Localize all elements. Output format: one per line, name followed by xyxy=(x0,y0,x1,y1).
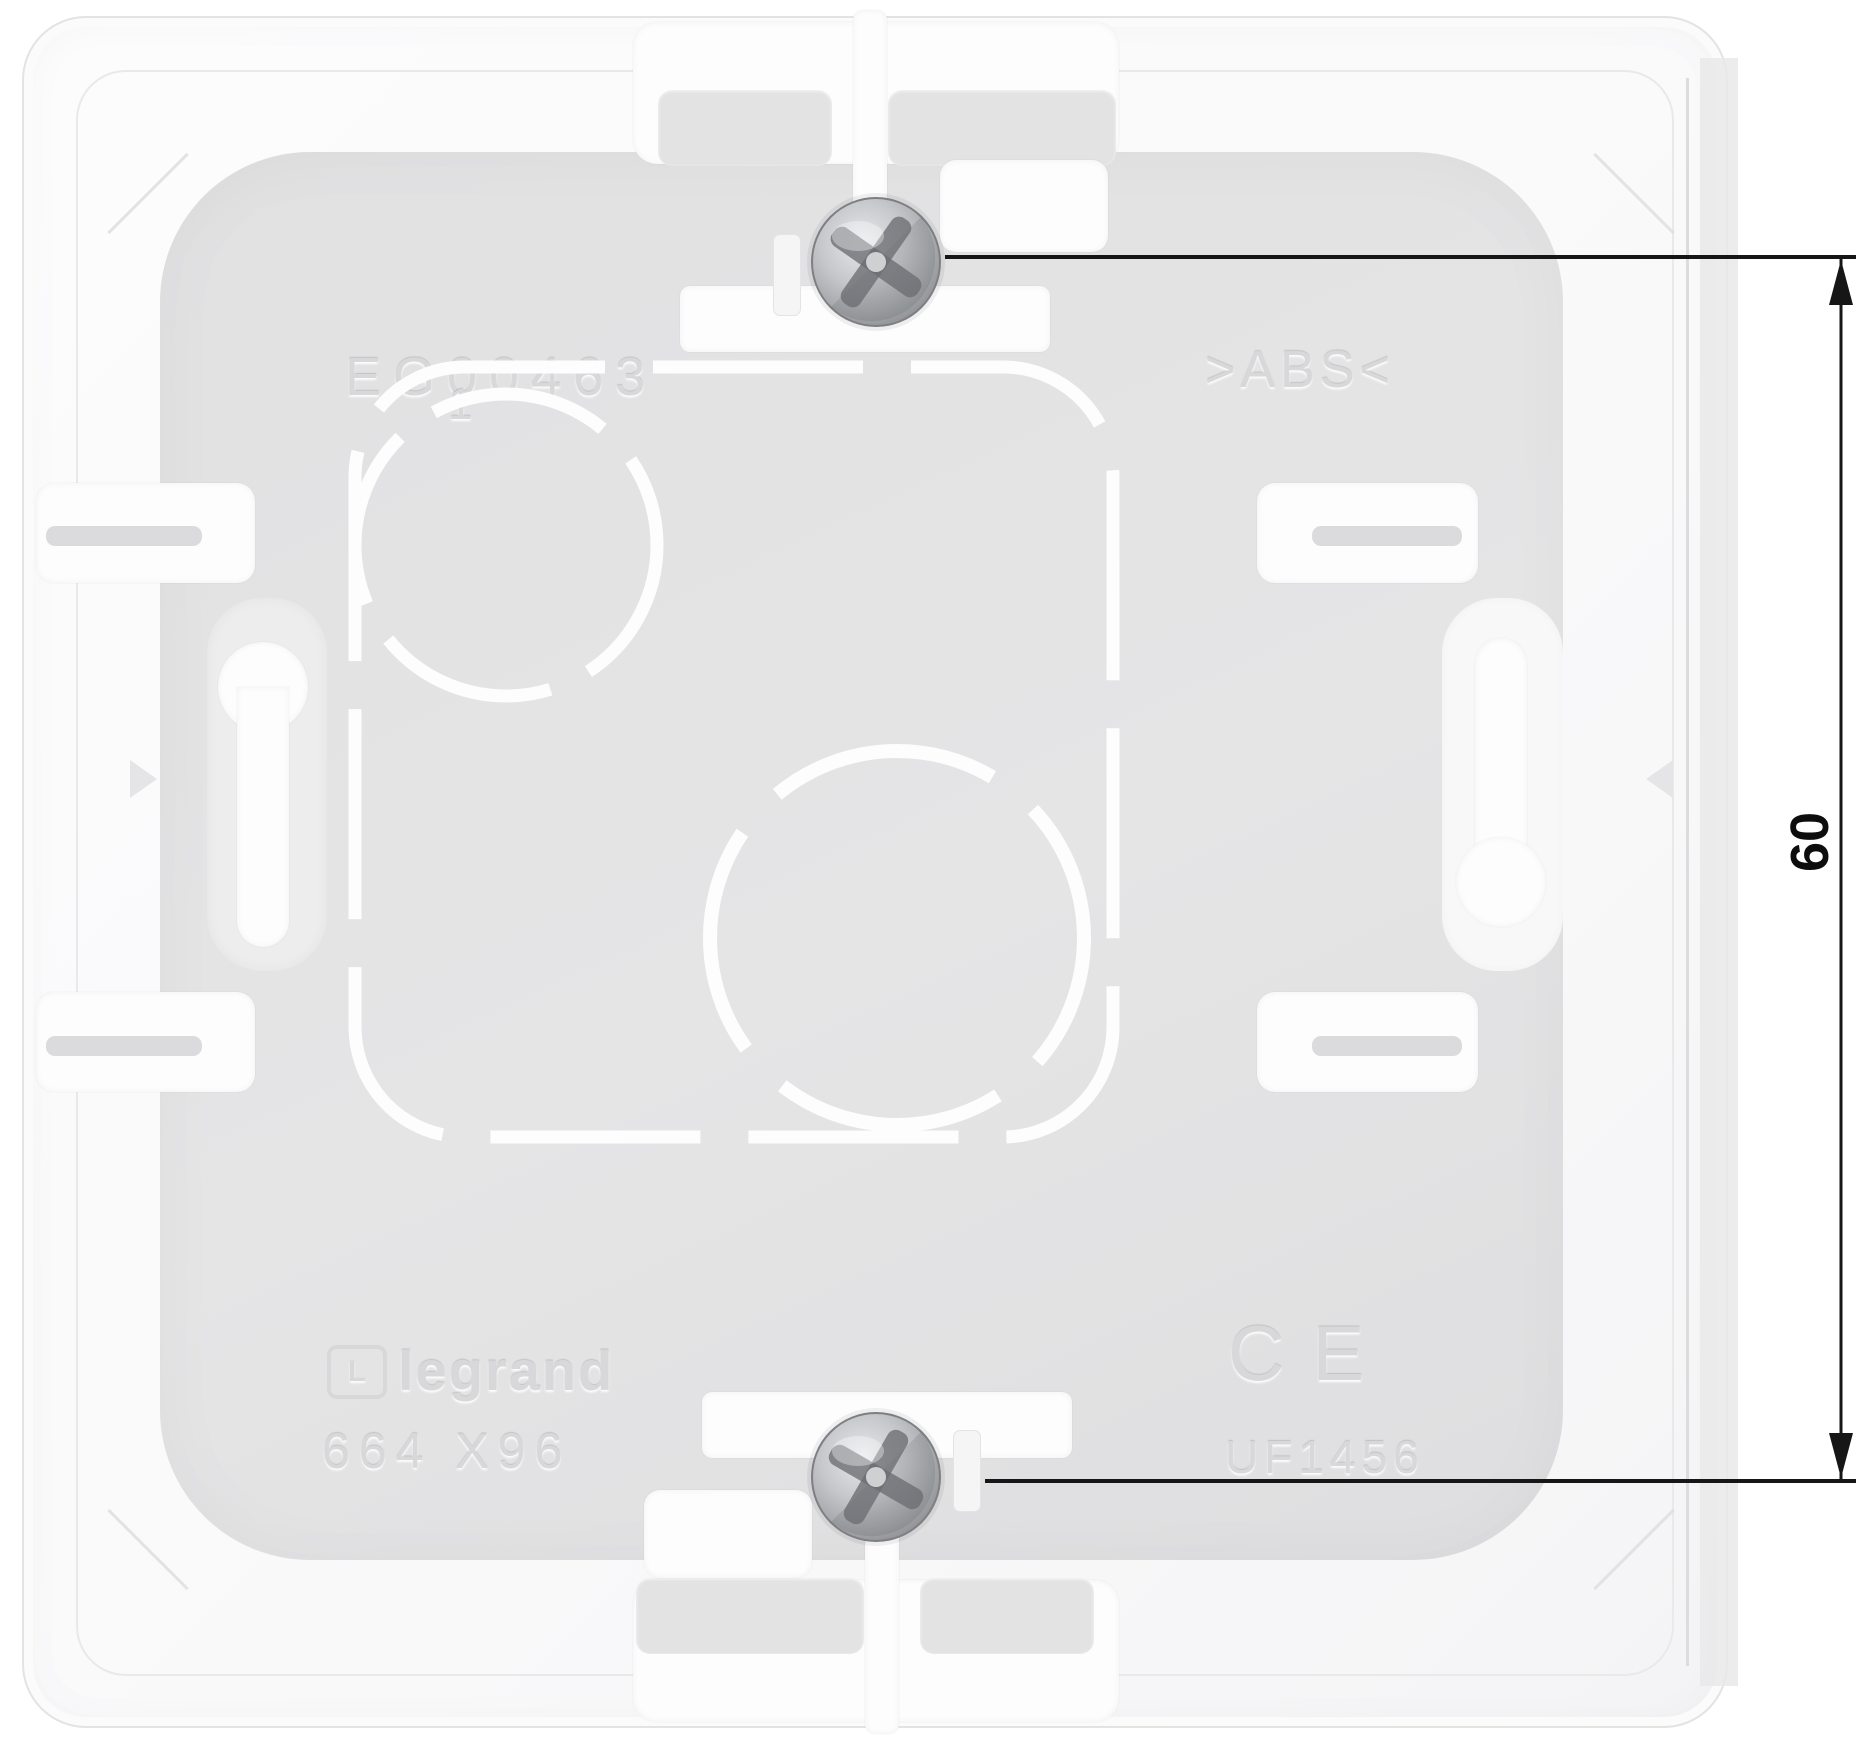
dimension-arrow-up-icon xyxy=(1829,260,1853,305)
right-edge-slot-lower-shadow xyxy=(1312,1036,1462,1056)
marking-model-code: EG00463 xyxy=(345,346,657,408)
right-keyhole-bulb xyxy=(1456,837,1546,927)
top-notch-ledge-left xyxy=(658,90,832,166)
top-screw-pocket xyxy=(940,160,1108,252)
bottom-screw-pocket xyxy=(644,1490,812,1578)
marking-batch-code: UF1456 xyxy=(1225,1430,1425,1484)
left-keyhole-slot xyxy=(237,687,289,947)
legrand-logo-icon: L xyxy=(327,1345,387,1399)
top-screw-tab xyxy=(773,234,801,316)
ce-mark: CE xyxy=(1228,1308,1392,1399)
bottom-screw-tab xyxy=(953,1430,981,1512)
right-edge-slot-upper-shadow xyxy=(1312,526,1462,546)
bottom-notch-ledge-right xyxy=(920,1578,1094,1654)
top-notch-ledge-right xyxy=(888,90,1116,166)
dimension-label: 60 xyxy=(1782,807,1838,877)
bottom-notch-ledge-left xyxy=(636,1578,864,1654)
marking-quantity: 1 xyxy=(448,380,472,430)
dimension-arrow-down-icon xyxy=(1829,1433,1853,1478)
box-right-wall-edge xyxy=(1686,78,1689,1666)
marking-reference: 664 X96 xyxy=(322,1422,571,1480)
bottom-mounting-slot xyxy=(702,1392,1072,1458)
left-edge-slot-lower-shadow xyxy=(46,1036,202,1056)
bottom-screw-channel xyxy=(865,1512,899,1734)
left-edge-slot-upper-shadow xyxy=(46,526,202,546)
top-screw-channel xyxy=(853,10,887,232)
product-photo: EG00463 1 >ABS< L legrand 664 X96 CE UF1… xyxy=(0,0,1856,1744)
right-pointer-tab xyxy=(1646,760,1673,798)
marking-brand: legrand xyxy=(398,1338,614,1403)
left-pointer-tab xyxy=(130,760,157,798)
box-right-wall-shading xyxy=(1700,58,1738,1686)
top-mounting-slot xyxy=(680,286,1050,352)
marking-material: >ABS< xyxy=(1205,340,1395,400)
